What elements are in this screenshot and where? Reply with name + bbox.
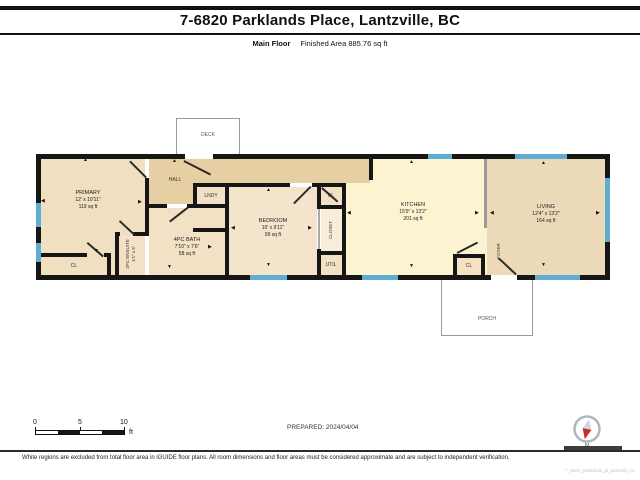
room-hall: [149, 159, 370, 183]
arrow-down-icon: ▼: [541, 263, 546, 268]
room-name: 2PC ENSUITE: [125, 239, 131, 269]
scale-bar: 0 5 10 ft: [35, 419, 145, 439]
arrow-up-icon: ▲: [541, 161, 546, 166]
room-kitchen-top: [370, 159, 487, 183]
wall: [149, 204, 167, 208]
door-opening: [185, 154, 213, 159]
wall: [481, 258, 485, 275]
arrow-right-icon: ▶: [138, 200, 142, 205]
room-label-util: UTIL: [326, 262, 337, 268]
arrow-left-icon: ◀: [231, 226, 235, 231]
scale-tick-label: 10: [120, 419, 128, 426]
room-label-hall: HALL: [169, 177, 182, 183]
window: [362, 275, 398, 280]
arrow-up-icon: ▲: [172, 159, 177, 164]
room-dims: 12' x 10'11": [75, 197, 100, 204]
room-area: 99 sq ft: [259, 232, 287, 239]
room-area: 119 sq ft: [75, 204, 100, 211]
scale-unit: ft: [129, 429, 133, 436]
bottom-rule: [0, 450, 640, 452]
window: [250, 275, 287, 280]
room-label-living: LIVING 12'4" x 13'2" 164 sq ft: [532, 204, 559, 224]
disclaimer-text: White regions are excluded from total fl…: [22, 455, 510, 461]
scale-tick-label: 5: [78, 419, 82, 426]
footer-accent-bar: [564, 446, 622, 450]
door-opening: [491, 275, 517, 280]
scale-bar-rule: [35, 430, 125, 435]
page-title: 7-6820 Parklands Place, Lantzville, BC: [0, 12, 640, 29]
window: [605, 178, 610, 242]
room-label-closet: CLOSET: [328, 221, 334, 239]
arrow-up-icon: ▲: [266, 188, 271, 193]
arrow-right-icon: ▶: [475, 211, 479, 216]
top-rule: [0, 6, 640, 10]
wall: [369, 159, 373, 180]
plan-id-watermark: 7_6820_parklands_pl_lantzville_bc: [450, 468, 635, 473]
window: [36, 243, 41, 262]
room-label-kitchen-closet: CL: [466, 263, 472, 269]
room-label-primary: PRIMARY 12' x 10'11" 119 sq ft: [75, 190, 100, 210]
wall: [342, 183, 346, 275]
room-label-bedroom: BEDROOM 10' x 9'11" 99 sq ft: [259, 218, 287, 238]
wall: [115, 236, 119, 275]
wall: [193, 228, 229, 232]
window: [36, 203, 41, 227]
arrow-down-icon: ▼: [94, 249, 99, 254]
scale-tick-label: 0: [33, 419, 37, 426]
room-label-primary-closet: CL: [71, 263, 77, 269]
floor-label: Main Floor: [252, 39, 290, 48]
room-area: 201 sq ft: [399, 216, 426, 223]
wall: [187, 204, 225, 208]
wall: [41, 253, 87, 257]
arrow-right-icon: ▶: [308, 226, 312, 231]
arrow-left-icon: ◀: [490, 211, 494, 216]
floor-plan-sheet: 7-6820 Parklands Place, Lantzville, BC M…: [0, 0, 640, 480]
arrow-left-icon: ◀: [41, 199, 45, 204]
room-label-kitchen: KITCHEN 15'9" x 13'2" 201 sq ft: [399, 202, 426, 222]
wall: [36, 275, 610, 280]
room-name: PRIMARY: [75, 190, 100, 197]
room-label-bath: 4PC BATH 7'10" x 7'6" 58 sq ft: [174, 237, 201, 257]
room-dims: 15'9" x 13'2": [399, 209, 426, 216]
room-divider: [484, 159, 487, 228]
room-label-ensuite: 2PC ENSUITE 4'1" x 5': [125, 239, 137, 269]
prepared-date: PREPARED: 2024/04/04: [287, 424, 358, 431]
room-dims: 12'4" x 13'2": [532, 211, 559, 218]
room-area: 58 sq ft: [174, 251, 201, 258]
title-rule: [0, 33, 640, 35]
arrow-down-icon: ▼: [409, 264, 414, 269]
room-dims: 7'10" x 7'6": [174, 244, 201, 251]
subtitle: Main Floor Finished Area 885.76 sq ft: [0, 39, 640, 48]
room-name: 4PC BATH: [174, 237, 201, 244]
room-area: 164 sq ft: [532, 218, 559, 225]
room-label-porch: PORCH: [478, 316, 496, 322]
arrow-left-icon: ◀: [347, 211, 351, 216]
wall: [107, 257, 111, 275]
arrow-down-icon: ▼: [167, 265, 172, 270]
room-label-bedroom-closet: CL: [328, 193, 334, 199]
wall: [193, 183, 290, 187]
arrow-up-icon: ▲: [83, 158, 88, 163]
room-label-foyer: FOYER: [496, 243, 502, 259]
room-name: KITCHEN: [399, 202, 426, 209]
room-label-lndy: LNDY: [204, 193, 217, 199]
compass-icon: [572, 414, 602, 444]
arrow-down-icon: ▼: [266, 263, 271, 268]
room-hall-lower: [149, 183, 193, 204]
floor-plan: PRIMARY 12' x 10'11" 119 sq ft HALL LNDY…: [36, 154, 610, 280]
room-name: BEDROOM: [259, 218, 287, 225]
arrow-up-icon: ▲: [409, 160, 414, 165]
room-dims: 10' x 9'11": [259, 225, 287, 232]
bifold-door-line: [318, 209, 320, 249]
room-name: LIVING: [532, 204, 559, 211]
wall: [133, 232, 149, 236]
porch-outline: [441, 280, 533, 336]
window: [428, 154, 452, 159]
wall: [225, 183, 229, 275]
arrow-right-icon: ▶: [596, 211, 600, 216]
room-label-deck: DECK: [201, 132, 215, 138]
window: [515, 154, 567, 159]
finished-area-label: Finished Area 885.76 sq ft: [300, 39, 387, 48]
window: [535, 275, 580, 280]
arrow-right-icon: ▶: [208, 245, 212, 250]
room-dims: 4'1" x 5': [131, 239, 137, 269]
